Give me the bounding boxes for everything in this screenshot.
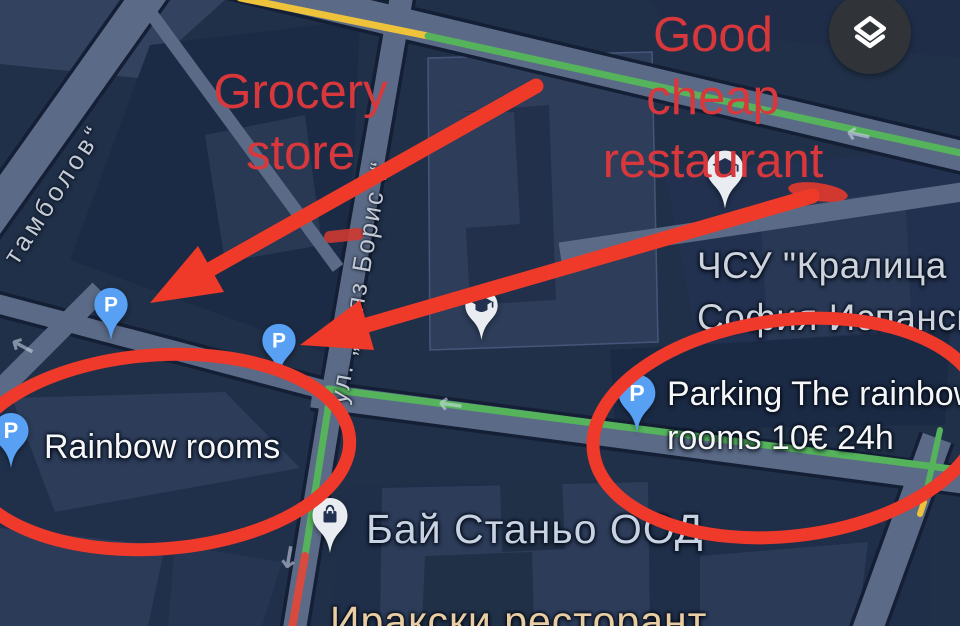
annotation-restaurant-line2: cheap — [588, 67, 838, 130]
annotation-restaurant-line1: Good — [588, 4, 838, 67]
annotation-grocery-line2: store — [178, 123, 423, 184]
annotation-grocery-line1: Grocery — [178, 62, 423, 123]
annotation-text-good-cheap-restaurant: Good cheap restaurant — [588, 4, 838, 193]
layers-icon — [848, 10, 892, 56]
annotation-restaurant-line3: restaurant — [588, 130, 838, 193]
map-canvas[interactable]: ← ← ← ↓ тамболов“ ул. „Княз Борис I“ P P… — [0, 0, 960, 626]
annotation-text-grocery-store: Grocery store — [178, 62, 423, 184]
